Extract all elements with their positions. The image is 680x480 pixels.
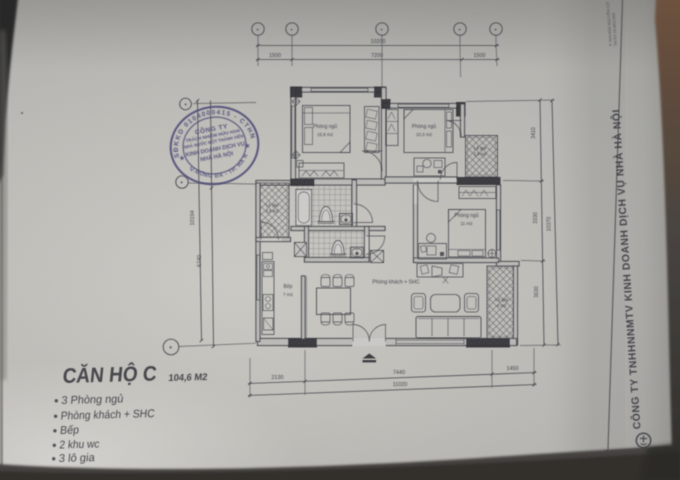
svg-text:3 lô gia: 3 lô gia (58, 452, 96, 465)
svg-text:10,3 m2: 10,3 m2 (416, 132, 432, 137)
svg-text:11020: 11020 (393, 382, 408, 388)
svg-text:3,6 m2: 3,6 m2 (266, 209, 279, 214)
svg-text:Phòng khách + SHC: Phòng khách + SHC (372, 280, 419, 286)
svg-text:2 khu wc: 2 khu wc (59, 438, 100, 451)
svg-text:Phòng ngủ: Phòng ngủ (412, 123, 436, 130)
svg-text:Phòng khách + SHC: Phòng khách + SHC (60, 408, 155, 422)
svg-text:Lô gia: Lô gia (495, 297, 508, 302)
svg-text:104,6 M2: 104,6 M2 (168, 372, 208, 384)
svg-text:4 m2: 4 m2 (497, 303, 507, 308)
svg-text:7200: 7200 (371, 53, 383, 59)
svg-text:2,8 m2: 2,8 m2 (474, 152, 487, 157)
svg-text:CĂN HỘ C: CĂN HỘ C (62, 362, 158, 388)
svg-text:11 m2: 11 m2 (461, 221, 473, 226)
svg-text:1450: 1450 (507, 366, 519, 372)
svg-text:Bếp: Bếp (284, 284, 293, 290)
svg-text:Phòng ngủ: Phòng ngủ (454, 212, 478, 219)
svg-text:1500: 1500 (269, 53, 281, 59)
svg-text:CÔNG TY TNHHNNMTV KINH DOANH D: CÔNG TY TNHHNNMTV KINH DOANH DỊCH VỤ NHÀ… (609, 109, 643, 430)
svg-text:6740: 6740 (197, 255, 203, 267)
svg-text:1500: 1500 (474, 53, 486, 59)
svg-text:7 m2: 7 m2 (283, 292, 293, 297)
svg-text:3630: 3630 (534, 286, 540, 298)
svg-text:Lô gia: Lô gia (474, 146, 487, 151)
svg-text:15,8 m2: 15,8 m2 (317, 132, 333, 137)
svg-text:Phòng ngủ: Phòng ngủ (313, 123, 337, 130)
svg-text:7440: 7440 (393, 370, 405, 376)
svg-text:10194: 10194 (190, 211, 196, 226)
svg-text:10200: 10200 (371, 39, 386, 45)
svg-text:10370: 10370 (547, 217, 553, 232)
svg-text:3330: 3330 (533, 212, 539, 224)
svg-text:3410: 3410 (531, 127, 537, 139)
svg-text:Bếp: Bếp (59, 425, 79, 437)
svg-text:TM ĐT 04.8521456: TM ĐT 04.8521456 (611, 13, 618, 47)
svg-text:3 Phòng ngủ: 3 Phòng ngủ (61, 393, 124, 407)
svg-text:2130: 2130 (272, 375, 284, 381)
svg-text:Lô gia: Lô gia (266, 203, 279, 208)
